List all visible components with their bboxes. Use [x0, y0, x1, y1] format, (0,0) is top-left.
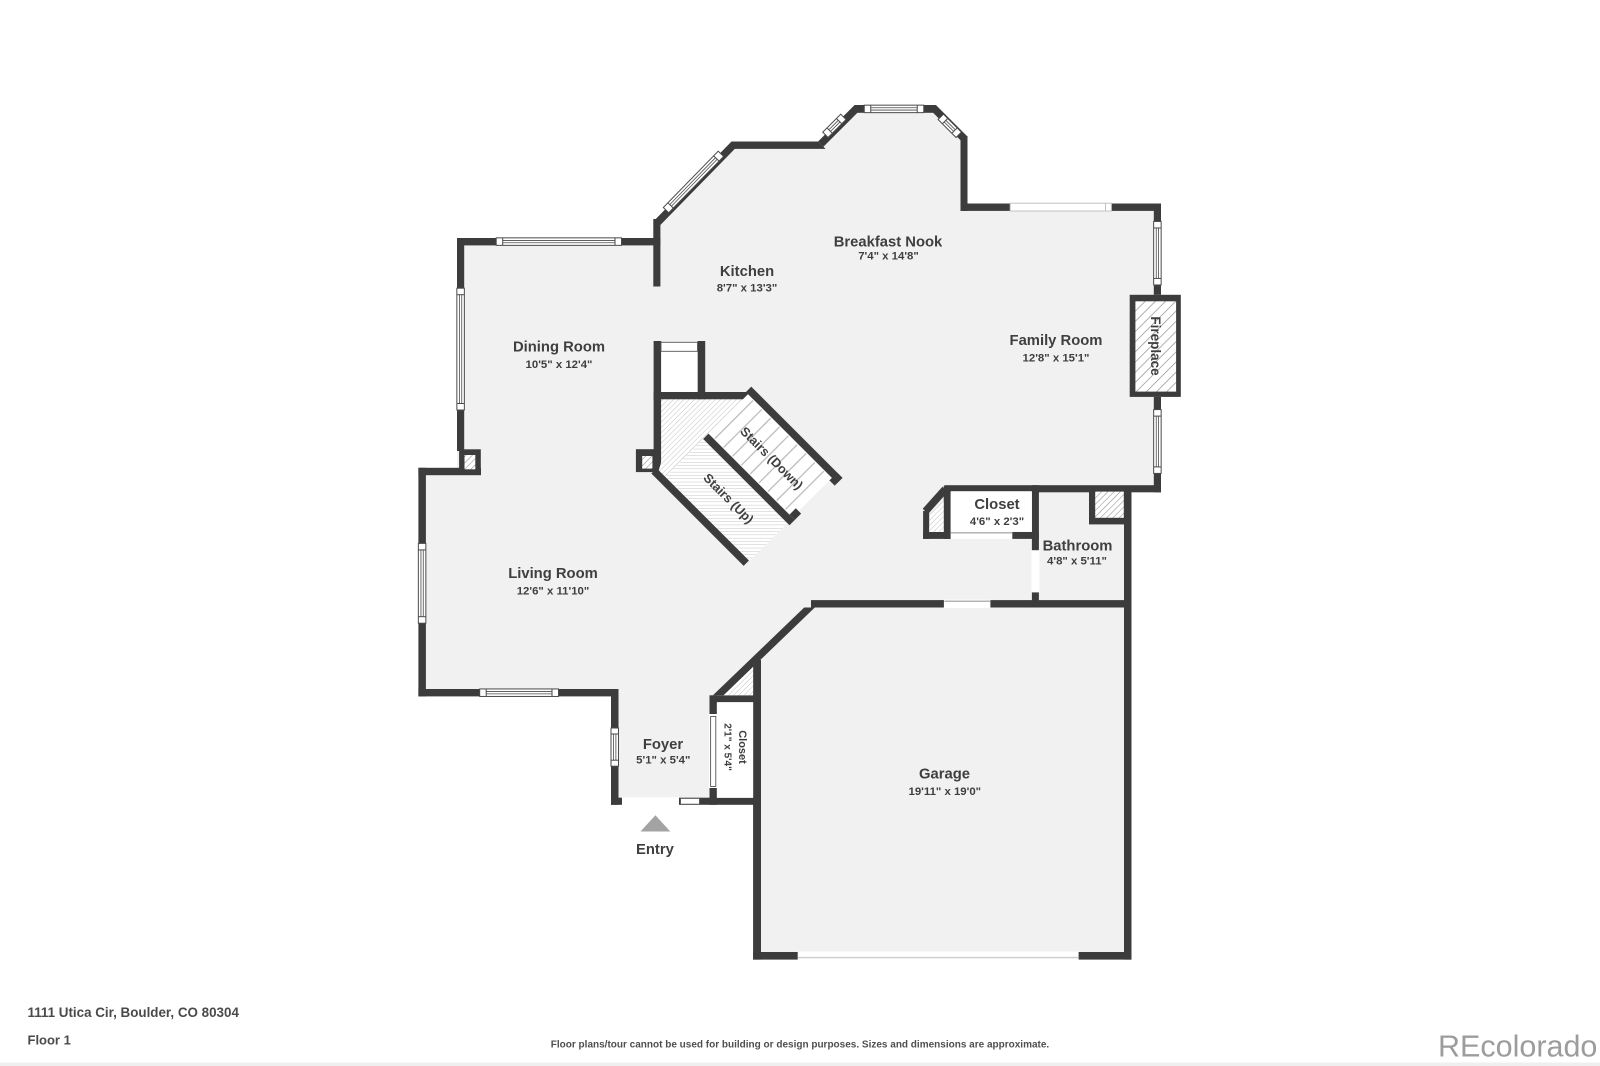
svg-text:Floor 1: Floor 1	[28, 1033, 71, 1048]
svg-text:5'1" x 5'4": 5'1" x 5'4"	[636, 755, 690, 767]
svg-text:Living Room: Living Room	[508, 566, 598, 582]
svg-text:Entry: Entry	[636, 842, 675, 858]
svg-text:Breakfast Nook: Breakfast Nook	[834, 235, 943, 251]
svg-text:12'6" x 11'10": 12'6" x 11'10"	[517, 586, 590, 598]
svg-text:Fireplace: Fireplace	[1148, 316, 1163, 376]
svg-text:2'1" x 5'4": 2'1" x 5'4"	[722, 723, 733, 771]
svg-text:Dining Room: Dining Room	[513, 340, 605, 356]
svg-text:19'11" x 19'0": 19'11" x 19'0"	[908, 786, 981, 798]
svg-text:4'8" x 5'11": 4'8" x 5'11"	[1047, 556, 1107, 568]
svg-text:Bathroom: Bathroom	[1043, 539, 1113, 555]
svg-text:Closet: Closet	[974, 497, 1019, 513]
svg-text:4'6" x 2'3": 4'6" x 2'3"	[970, 516, 1024, 528]
svg-text:12'8" x 15'1": 12'8" x 15'1"	[1023, 353, 1090, 365]
svg-text:Family Room: Family Room	[1010, 333, 1103, 349]
svg-text:Garage: Garage	[919, 767, 970, 783]
svg-text:Kitchen: Kitchen	[720, 264, 774, 280]
svg-text:7'4" x 14'8": 7'4" x 14'8"	[858, 251, 919, 263]
svg-text:Foyer: Foyer	[643, 737, 684, 753]
svg-text:Closet: Closet	[736, 730, 748, 764]
svg-text:10'5" x 12'4": 10'5" x 12'4"	[526, 359, 593, 371]
svg-text:Floor plans/tour cannot be use: Floor plans/tour cannot be used for buil…	[551, 1040, 1050, 1051]
svg-text:1111 Utica Cir, Boulder, CO 80: 1111 Utica Cir, Boulder, CO 80304	[28, 1005, 240, 1020]
svg-text:REcolorado: REcolorado	[1438, 1030, 1597, 1064]
svg-text:8'7" x 13'3": 8'7" x 13'3"	[717, 283, 778, 295]
